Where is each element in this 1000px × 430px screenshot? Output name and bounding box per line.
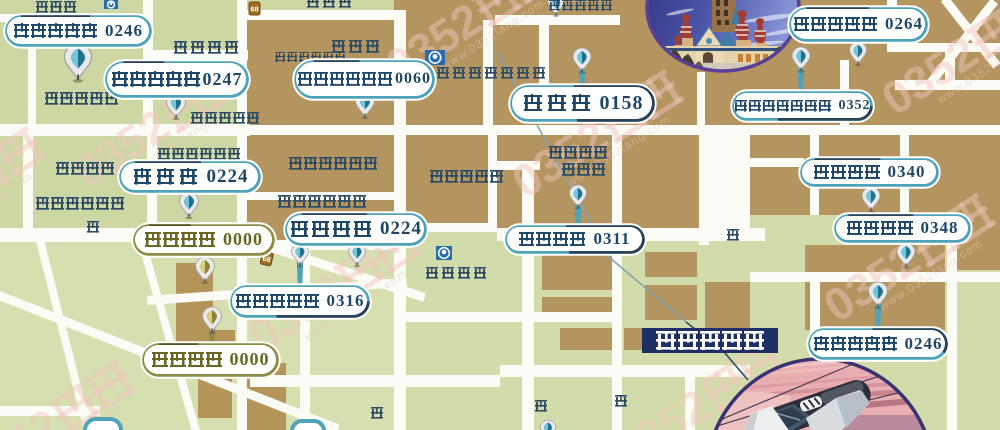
svg-text:68: 68	[250, 5, 258, 14]
